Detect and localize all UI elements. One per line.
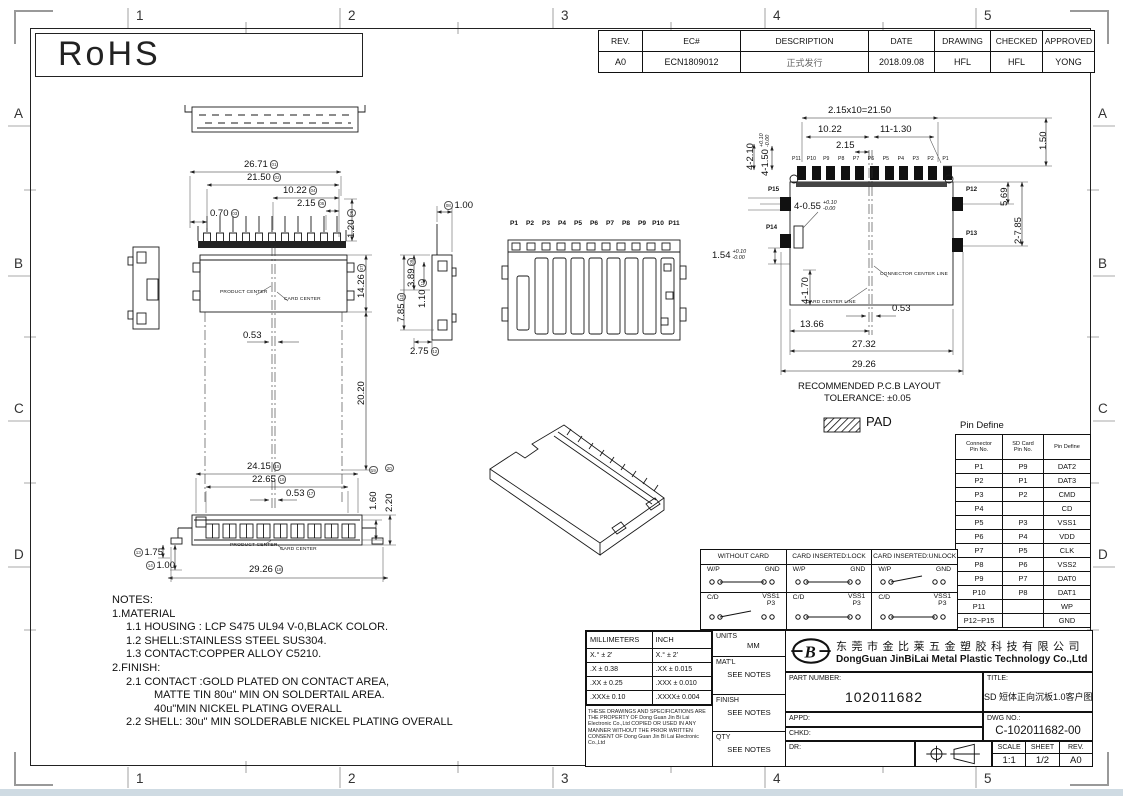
- rev-value: A0: [599, 52, 643, 72]
- pin-define-cell: P8: [1003, 586, 1044, 600]
- appd-label: APPD:: [789, 715, 810, 722]
- cd-switch-cell: C/DVSS1P3: [872, 593, 957, 629]
- dim-2-75: 2.7512: [410, 346, 439, 357]
- zone-label: 4: [773, 771, 781, 786]
- note-line: 40u"MIN NICKEL PLATING OVERALL: [154, 703, 453, 717]
- ec-col-header: EC#: [643, 31, 741, 51]
- tolerance-table: MILLIMETERSINCH X.° ± 2'X.° ± 2' .X ± 0.…: [585, 630, 713, 706]
- wp-label: W/P: [707, 566, 720, 573]
- pin-define-cell: WP: [1044, 600, 1091, 614]
- pin-define-cell: DAT0: [1044, 572, 1091, 586]
- cd-label: C/D: [707, 594, 719, 608]
- zone-label: D: [14, 547, 24, 562]
- dim-1-00-side: 081.00: [444, 200, 473, 211]
- connector-center-line-label: CONNECTOR CENTER LINE: [880, 272, 948, 277]
- pin-define-cell: P8: [956, 558, 1003, 572]
- pd-header-define: Pin Define: [1044, 435, 1091, 460]
- sheet-label: SHEET: [1026, 742, 1058, 754]
- zone-label: 3: [561, 8, 569, 23]
- pcb-pin-label: P4: [893, 156, 908, 162]
- dim-27-32: 27.32: [852, 339, 876, 350]
- checked-col-header: CHECKED: [991, 31, 1043, 51]
- wp-switch-cell: W/PGND: [872, 565, 957, 594]
- mid-front-pin-label: P1: [506, 220, 522, 227]
- dim-4-1-50: 4-1.50+0.10-0.00: [760, 133, 771, 176]
- dim-5-69: 5.69: [999, 188, 1010, 207]
- dr-label: DR:: [789, 744, 801, 751]
- tol-cell: X.° ± 2': [587, 648, 653, 662]
- switch-schematic-icon: [707, 609, 777, 621]
- pin-define-cell: P7: [1003, 572, 1044, 586]
- zone-label: A: [1098, 106, 1107, 121]
- dim-29-26-bottom: 29.2618: [249, 564, 283, 575]
- pin-define-cell: DAT3: [1044, 474, 1091, 488]
- rohs-label: RoHS: [58, 35, 161, 73]
- pin-define-row: P7P5CLK: [956, 544, 1091, 558]
- p3-label: P3: [934, 601, 951, 608]
- drawing-col-header: DRAWING: [935, 31, 991, 51]
- tol-header-mm: MILLIMETERS: [587, 632, 653, 649]
- pin-define-cell: CLK: [1044, 544, 1091, 558]
- balloon-20: 20: [385, 464, 394, 472]
- dim-0-53-bottom: 0.5317: [286, 488, 315, 499]
- units-value: MM: [747, 641, 760, 650]
- note-line: 1.MATERIAL: [112, 608, 453, 622]
- window-bottom-strip: [0, 789, 1123, 796]
- p3-label: P3: [762, 601, 779, 608]
- zone-label: 5: [984, 8, 992, 23]
- cd-switch-cell: C/DVSS1P3: [787, 593, 872, 629]
- pin-define-cell: P7: [956, 544, 1003, 558]
- dim-13-66: 13.66: [800, 319, 824, 330]
- dim-1-10: 1.1011: [417, 279, 428, 308]
- drawing-value: HFL: [935, 52, 991, 72]
- notes-block: NOTES: 1.MATERIAL1.1 HOUSING : LCP S475 …: [112, 594, 453, 730]
- zone-label: 5: [984, 771, 992, 786]
- dim-2-15: 2.1505: [297, 198, 326, 209]
- dim-10-22: 10.2204: [283, 185, 317, 196]
- disclaimer-text: THESE DRAWINGS AND SPECIFICATIONS ARE TH…: [586, 706, 712, 749]
- pin-define-cell: P2: [956, 474, 1003, 488]
- pin-define-row: P5P3VSS1: [956, 516, 1091, 530]
- zone-label: B: [1098, 256, 1107, 271]
- rev-col-header: REV.: [599, 31, 643, 51]
- switch-schematic-icon: [793, 609, 863, 621]
- pcb-pin-label: P9: [819, 156, 834, 162]
- tol-cell: .XXX ± 0.010: [652, 676, 711, 690]
- pin-define-cell: P1: [1003, 474, 1044, 488]
- company-band: B 东莞市金比莱五金塑胶科技有限公司 DongGuan JinBiLai Met…: [785, 630, 1093, 672]
- date-value: 2018.09.08: [869, 52, 935, 72]
- pin-define-title: Pin Define: [960, 420, 1091, 431]
- note-line: 1.1 HOUSING : LCP S475 UL94 V-0,BLACK CO…: [126, 621, 453, 635]
- ec-value: ECN1809012: [643, 52, 741, 72]
- date-col-header: DATE: [869, 31, 935, 51]
- zone-label: 2: [348, 8, 356, 23]
- mid-front-pin-label: P4: [554, 220, 570, 227]
- wp-switch-cell: W/PGND: [701, 565, 786, 594]
- mid-front-pin-label: P11: [666, 220, 682, 227]
- pin-p13-label: P13: [966, 230, 977, 237]
- pad-legend-label: PAD: [866, 414, 892, 429]
- product-center-label-bottom: PRODUCT CENTER: [230, 543, 278, 548]
- dim-20-20: 20.20: [356, 381, 367, 405]
- switch-col-header: WITHOUT CARD: [701, 550, 786, 565]
- dim-pitch: 2.15x10=21.50: [828, 105, 891, 116]
- title-label: TITLE:: [987, 675, 1008, 682]
- mid-front-pin-label: P7: [602, 220, 618, 227]
- switch-schematic-icon: [878, 609, 948, 621]
- pcb-pin-label: P3: [908, 156, 923, 162]
- card-center-label-bottom: CARD CENTER: [280, 547, 317, 552]
- pcb-pin-label: P6: [864, 156, 879, 162]
- scale-label: SCALE: [993, 742, 1025, 754]
- note-line: 2.1 CONTACT :GOLD PLATED ON CONTACT AREA…: [126, 676, 453, 690]
- pcb-note-line2: TOLERANCE: ±0.05: [824, 393, 911, 404]
- mid-front-pin-label: P5: [570, 220, 586, 227]
- switch-col-header: CARD INSERTED:UNLOCK: [872, 550, 957, 565]
- dim-2-20: 2.20: [384, 494, 395, 513]
- tol-header-inch: INCH: [652, 632, 711, 649]
- rohs-box: RoHS: [35, 33, 363, 77]
- pin-define-cell: P6: [1003, 558, 1044, 572]
- sheet-value: 1/2: [1026, 754, 1058, 766]
- dim-21-50: 21.5002: [247, 172, 281, 183]
- pcb-pin-labels: P11P10P9P8P7P6P5P4P3P2P1: [789, 156, 953, 162]
- pin-define-row: P4CD: [956, 502, 1091, 516]
- switch-schematic-icon: [793, 574, 863, 586]
- gnd-label: GND: [765, 566, 780, 573]
- balloon-19: 19: [369, 466, 378, 474]
- note-line: MATTE TIN 80u" MIN ON SOLDERTAIL AREA.: [154, 689, 453, 703]
- note-line: 1.3 CONTACT:COPPER ALLOY C5210.: [126, 648, 453, 662]
- dim-3-89: 3.8909: [406, 258, 417, 287]
- pin-define-row: P3P2CMD: [956, 488, 1091, 502]
- dim-14-26: 14.2607: [356, 264, 367, 298]
- qty-label: QTY: [716, 734, 730, 741]
- pin-define-cell: DAT2: [1044, 460, 1091, 474]
- qty-value: SEE NOTES: [713, 745, 785, 754]
- dim-11-holes: 11-1.30: [880, 124, 912, 135]
- title-value: SD 短体正向沉板1.0客户图: [984, 690, 1092, 703]
- third-angle-projection-icon: [922, 742, 986, 766]
- zone-label: 3: [561, 771, 569, 786]
- revision-header-row: REV. EC# DESCRIPTION DATE DRAWING CHECKE…: [599, 31, 1094, 51]
- pin-define-row: P1P9DAT2: [956, 460, 1091, 474]
- switch-column: CARD INSERTED:UNLOCKW/PGNDC/DVSS1P3: [872, 550, 957, 629]
- pcb-pin-label: P2: [923, 156, 938, 162]
- product-center-label: PRODUCT CENTER: [220, 290, 268, 295]
- mid-front-pin-label: P8: [618, 220, 634, 227]
- mid-front-pin-labels: P1P2P3P4P5P6P7P8P9P10P11: [506, 220, 682, 227]
- pin-define-row: P9P7DAT0: [956, 572, 1091, 586]
- finish-value: SEE NOTES: [713, 708, 785, 717]
- pin-define-cell: VSS1: [1044, 516, 1091, 530]
- tol-cell: .XXX± 0.10: [587, 690, 653, 704]
- dim-24-15: 24.1515: [247, 461, 281, 472]
- zone-label: A: [14, 106, 23, 121]
- dim-2-15-pcb: 2.15: [836, 140, 855, 151]
- chkd-label: CHKD:: [789, 730, 811, 737]
- switch-column: WITHOUT CARDW/PGNDC/DVSS1P3: [701, 550, 787, 629]
- approved-col-header: APPROVED: [1043, 31, 1094, 51]
- wp-switch-cell: W/PGND: [787, 565, 872, 594]
- units-column: UNITSMM MAT'LSEE NOTES FINISHSEE NOTES Q…: [712, 630, 786, 767]
- description-col-header: DESCRIPTION: [741, 31, 869, 51]
- pin-define-row: P12~P15GND: [956, 614, 1091, 628]
- wp-label: W/P: [878, 566, 891, 573]
- pin-define-row: P11WP: [956, 600, 1091, 614]
- zone-label: 1: [136, 8, 144, 23]
- part-number-label: PART NUMBER:: [789, 675, 841, 682]
- company-name-en: DongGuan JinBiLai Metal Plastic Technolo…: [836, 654, 1088, 665]
- cd-label: C/D: [878, 594, 890, 608]
- pin-define-cell: DAT1: [1044, 586, 1091, 600]
- pin-define-cell: P3: [1003, 516, 1044, 530]
- pin-define-cell: P6: [956, 530, 1003, 544]
- dr-cell: DR:: [785, 741, 915, 767]
- rev-label: REV.: [1060, 742, 1092, 754]
- pin-define-cell: P11: [956, 600, 1003, 614]
- pin-define-cell: P9: [1003, 460, 1044, 474]
- mid-front-pin-label: P9: [634, 220, 650, 227]
- switch-column: CARD INSERTED:LOCKW/PGNDC/DVSS1P3: [787, 550, 873, 629]
- title-cell: TITLE: SD 短体正向沉板1.0客户图: [983, 672, 1093, 712]
- pin-define-cell: [1003, 614, 1044, 628]
- drawing-sheet: .xl{stroke:#555;stroke-width:.55;fill:no…: [0, 0, 1123, 796]
- part-number-value: 102011682: [786, 689, 982, 705]
- company-name-cn: 东莞市金比莱五金塑胶科技有限公司: [836, 638, 1088, 654]
- pin-define-cell: P9: [956, 572, 1003, 586]
- dwg-no-label: DWG NO.:: [987, 715, 1020, 722]
- zone-label: C: [1098, 401, 1108, 416]
- dim-1-75: 131.75: [134, 547, 163, 558]
- pcb-pin-label: P10: [804, 156, 819, 162]
- switch-schematic-icon: [707, 574, 777, 586]
- gnd-label: GND: [850, 566, 865, 573]
- dim-22-65: 22.6516: [252, 474, 286, 485]
- disclaimer-box: THESE DRAWINGS AND SPECIFICATIONS ARE TH…: [585, 705, 713, 767]
- approved-value: YONG: [1043, 52, 1094, 72]
- zone-label: C: [14, 401, 24, 416]
- pin-define-cell: P12~P15: [956, 614, 1003, 628]
- zone-label: B: [14, 256, 23, 271]
- pin-define-cell: P5: [1003, 544, 1044, 558]
- dim-7-85: 7.8510: [396, 293, 407, 322]
- dim-0-70: 0.7003: [210, 208, 239, 219]
- revision-value-row: A0 ECN1809012 正式发行 2018.09.08 HFL HFL YO…: [599, 51, 1094, 72]
- company-logo: B: [790, 636, 832, 666]
- tol-cell: X.° ± 2': [652, 648, 711, 662]
- zone-label: D: [1098, 547, 1108, 562]
- pcb-note-line1: RECOMMENDED P.C.B LAYOUT: [798, 381, 941, 392]
- dim-10-22-pcb: 10.22: [818, 124, 842, 135]
- chkd-cell: CHKD:: [785, 727, 983, 741]
- gnd-label: GND: [936, 566, 951, 573]
- dim-4-0-55: 4-0.55+0.10-0.00: [794, 201, 837, 212]
- part-number-cell: PART NUMBER: 102011682: [785, 672, 983, 712]
- dwg-no-cell: DWG NO.: C-102011682-00: [983, 712, 1093, 741]
- dim-0-53-pcb: 0.53: [892, 303, 911, 314]
- zone-label: 1: [136, 771, 144, 786]
- pin-define-table: Connector Pin No. SD Card Pin No. Pin De…: [955, 434, 1091, 628]
- wp-label: W/P: [793, 566, 806, 573]
- note-line: 1.2 SHELL:STAINLESS STEEL SUS304.: [126, 635, 453, 649]
- tol-cell: .XX ± 0.015: [652, 662, 711, 676]
- pin-define-cell: P1: [956, 460, 1003, 474]
- card-center-line-label: CARD CENTER LINE: [806, 300, 856, 305]
- note-line: 2.2 SHELL: 30u" MIN SOLDERABLE NICKEL PL…: [126, 716, 453, 730]
- switch-col-header: CARD INSERTED:LOCK: [787, 550, 872, 565]
- scale-sheet-rev-block: SCALE1:1 SHEET1/2 REV.A0: [992, 741, 1093, 767]
- matl-value: SEE NOTES: [713, 670, 785, 679]
- mid-front-pin-label: P3: [538, 220, 554, 227]
- dim-26-71: 26.7101: [244, 159, 278, 170]
- p3-label: P3: [848, 601, 865, 608]
- pin-define-cell: P4: [956, 502, 1003, 516]
- dim-4-2-10: 4-2.10: [745, 143, 756, 170]
- revision-table: REV. EC# DESCRIPTION DATE DRAWING CHECKE…: [598, 30, 1095, 73]
- pin-define-row: P6P4VDD: [956, 530, 1091, 544]
- cd-label: C/D: [793, 594, 805, 608]
- pin-define-cell: P10: [956, 586, 1003, 600]
- tol-cell: .X ± 0.38: [587, 662, 653, 676]
- dim-2-7-85: 2-7.85: [1013, 217, 1024, 244]
- dim-0-53-top: 0.53: [243, 330, 262, 341]
- pin-define-cell: VDD: [1044, 530, 1091, 544]
- mid-front-pin-label: P6: [586, 220, 602, 227]
- projection-symbol-cell: [915, 741, 992, 767]
- pin-define-cell: VSS2: [1044, 558, 1091, 572]
- scale-value: 1:1: [993, 754, 1025, 766]
- tol-cell: .XXXX± 0.004: [652, 690, 711, 704]
- pin-define-cell: GND: [1044, 614, 1091, 628]
- pin-define-row: P2P1DAT3: [956, 474, 1091, 488]
- zone-label: 2: [348, 771, 356, 786]
- cd-switch-cell: C/DVSS1P3: [701, 593, 786, 629]
- pin-define-cell: P2: [1003, 488, 1044, 502]
- pin-p15-label: P15: [768, 186, 779, 193]
- pin-define-cell: P4: [1003, 530, 1044, 544]
- dim-1-60: 1.60: [368, 492, 379, 511]
- pcb-pin-label: P11: [789, 156, 804, 162]
- pd-header-connector: Connector Pin No.: [956, 435, 1003, 460]
- dwg-no-value: C-102011682-00: [984, 725, 1092, 737]
- card-center-label: CARD CENTER: [284, 297, 321, 302]
- pin-p12-label: P12: [966, 186, 977, 193]
- pin-define-cell: CD: [1044, 502, 1091, 516]
- pin-define-cell: [1003, 600, 1044, 614]
- pin-define-cell: [1003, 502, 1044, 516]
- appd-cell: APPD:: [785, 712, 983, 727]
- finish-label: FINISH: [716, 697, 739, 704]
- dim-1-50-pcb: 1.50: [1038, 132, 1049, 151]
- pin-define-block: Pin Define Connector Pin No. SD Card Pin…: [955, 420, 1091, 628]
- pcb-pin-label: P7: [849, 156, 864, 162]
- mid-front-pin-label: P10: [650, 220, 666, 227]
- dim-1-54: 1.54+0.10-0.00: [712, 250, 746, 261]
- note-line: 2.FINISH:: [112, 662, 453, 676]
- pd-header-sdcard: SD Card Pin No.: [1003, 435, 1044, 460]
- pcb-pin-label: P1: [938, 156, 953, 162]
- pin-define-cell: P5: [956, 516, 1003, 530]
- notes-title: NOTES:: [112, 594, 453, 608]
- dim-1-20: 1.2006: [346, 209, 357, 238]
- pcb-pin-label: P8: [834, 156, 849, 162]
- description-value: 正式发行: [741, 52, 869, 72]
- pin-define-row: P8P6VSS2: [956, 558, 1091, 572]
- dim-1-00-bottom: 141.00: [146, 560, 175, 571]
- matl-label: MAT'L: [716, 659, 736, 666]
- dim-29-26-pcb: 29.26: [852, 359, 876, 370]
- checked-value: HFL: [991, 52, 1043, 72]
- pcb-pin-label: P5: [878, 156, 893, 162]
- pin-define-cell: CMD: [1044, 488, 1091, 502]
- pin-define-row: P10P8DAT1: [956, 586, 1091, 600]
- units-label: UNITS: [716, 633, 737, 640]
- svg-text:B: B: [803, 643, 815, 662]
- pin-define-cell: P3: [956, 488, 1003, 502]
- pin-p14-label: P14: [766, 224, 777, 231]
- switch-state-table: WITHOUT CARDW/PGNDC/DVSS1P3CARD INSERTED…: [700, 549, 958, 630]
- rev-value-box: A0: [1060, 754, 1092, 766]
- tol-cell: .XX ± 0.25: [587, 676, 653, 690]
- switch-schematic-icon: [878, 574, 948, 586]
- zone-label: 4: [773, 8, 781, 23]
- mid-front-pin-label: P2: [522, 220, 538, 227]
